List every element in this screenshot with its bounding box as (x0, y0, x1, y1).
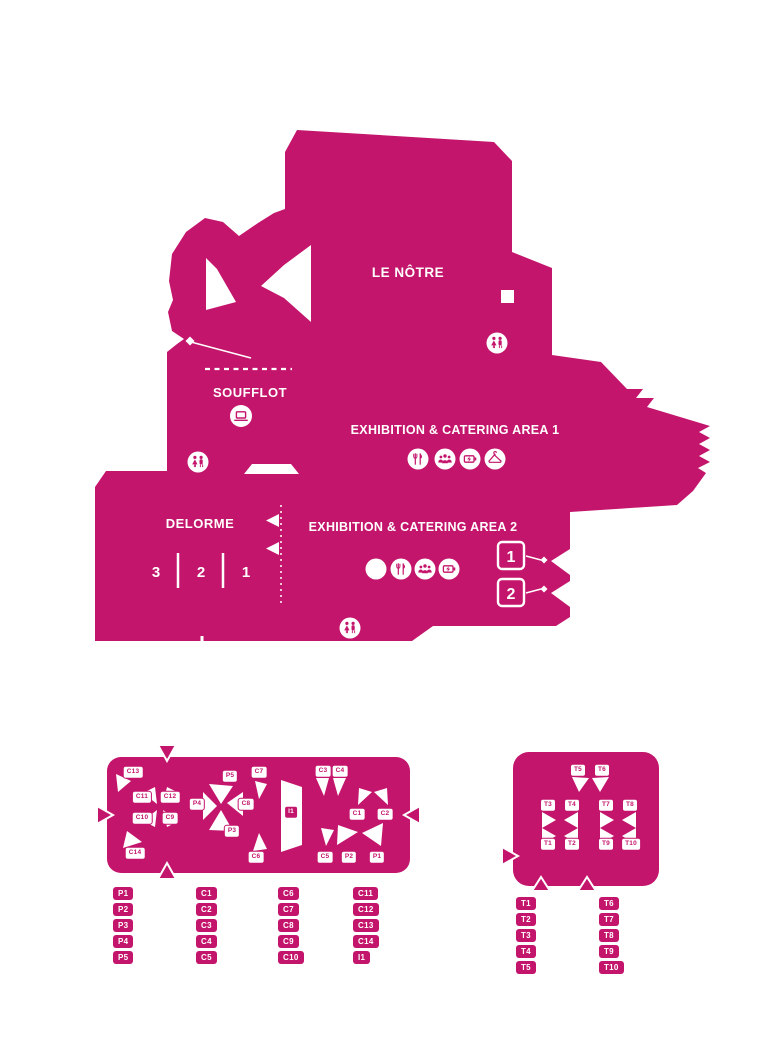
legend-badge-t7: T7 (599, 913, 619, 926)
wc-icon (188, 452, 209, 473)
spot-badge-c12: C12 (160, 791, 181, 804)
legend-badge-p4: P4 (113, 935, 133, 948)
spot-badge-p3: P3 (224, 825, 240, 838)
spot-badge-t3: T3 (540, 799, 556, 812)
legend-badge-i1: I1 (353, 951, 370, 964)
spot-badge-i1: I1 (284, 806, 298, 819)
wc-icon (340, 618, 361, 639)
legend-badge-c11: C11 (353, 887, 378, 900)
delorme-section-1: 1 (242, 564, 250, 581)
spot-badge-t1: T1 (540, 838, 556, 851)
legend-badge-t8: T8 (599, 929, 619, 942)
delorme-section-2: 2 (197, 564, 205, 581)
legend-badge-p2: P2 (113, 903, 133, 916)
restaurant-icon (391, 559, 412, 580)
legend-badge-c10: C10 (278, 951, 304, 964)
screen-icon (230, 405, 252, 427)
door-2-label: 2 (507, 586, 516, 603)
hall-delorme-label: DELORME (166, 516, 235, 531)
legend-badge-t2: T2 (516, 913, 536, 926)
spot-badge-c5: C5 (317, 851, 334, 864)
legend-badge-c14: C14 (353, 935, 379, 948)
spot-badge-t10: T10 (621, 838, 641, 851)
venue-floor-plan: # LE NÔTRE SOUFFLOT EXHIBITION & CATERIN… (0, 0, 783, 1049)
legend-badge-c6: C6 (278, 887, 299, 900)
legend-badge-p1: P1 (113, 887, 133, 900)
hashtag-icon (366, 559, 387, 580)
legend-badge-c9: C9 (278, 935, 299, 948)
delorme-section-3: 3 (152, 564, 160, 581)
legend-badge-p3: P3 (113, 919, 133, 932)
legend-badge-t1: T1 (516, 897, 536, 910)
legend-badge-t9: T9 (599, 945, 619, 958)
spot-badge-t5: T5 (570, 764, 586, 777)
spot-badge-p2: P2 (341, 851, 357, 864)
charging-icon (439, 559, 460, 580)
spot-badge-c4: C4 (332, 765, 349, 778)
legend-badge-c1: C1 (196, 887, 217, 900)
legend-badge-c5: C5 (196, 951, 217, 964)
spot-badge-c6: C6 (248, 851, 265, 864)
legend-badge-c7: C7 (278, 903, 299, 916)
legend-badge-c3: C3 (196, 919, 217, 932)
legend-badge-t4: T4 (516, 945, 536, 958)
legend-badge-t6: T6 (599, 897, 619, 910)
spot-badge-c7: C7 (251, 766, 268, 779)
shaft-cutout (501, 290, 514, 303)
spot-badge-c9: C9 (162, 812, 179, 825)
legend-badge-t10: T10 (599, 961, 624, 974)
legend-badge-c2: C2 (196, 903, 217, 916)
legend-badge-c4: C4 (196, 935, 217, 948)
legend-badge-t3: T3 (516, 929, 536, 942)
spot-badge-p5: P5 (222, 770, 238, 783)
spot-badge-c3: C3 (315, 765, 332, 778)
spot-badge-t2: T2 (564, 838, 580, 851)
charging-icon (460, 449, 481, 470)
hall-detail-right (513, 752, 659, 886)
spot-badge-c13: C13 (123, 766, 144, 779)
wc-icon (487, 333, 508, 354)
spot-badge-t8: T8 (622, 799, 638, 812)
legend-badge-c13: C13 (353, 919, 379, 932)
door-1-label: 1 (507, 549, 516, 566)
spot-badge-c1: C1 (349, 808, 366, 821)
legend-badge-c8: C8 (278, 919, 299, 932)
area2-label: EXHIBITION & CATERING AREA 2 (309, 520, 518, 534)
spot-badge-t4: T4 (564, 799, 580, 812)
spot-badge-c14: C14 (125, 847, 146, 860)
spot-badge-t7: T7 (598, 799, 614, 812)
stage-shape (244, 464, 299, 474)
legend-badge-t5: T5 (516, 961, 536, 974)
spot-badge-t9: T9 (598, 838, 614, 851)
hall-soufflot-label: SOUFFLOT (213, 385, 287, 400)
spot-badge-c8: C8 (238, 798, 255, 811)
spot-badge-c10: C10 (132, 812, 153, 825)
cloakroom-icon (485, 449, 506, 470)
spot-badge-p4: P4 (189, 798, 205, 811)
spot-badge-t6: T6 (594, 764, 610, 777)
meeting-group-icon (415, 559, 436, 580)
meeting-group-icon (435, 449, 456, 470)
spot-badge-c11: C11 (132, 791, 152, 804)
spot-badge-p1: P1 (369, 851, 385, 864)
legend-badge-c12: C12 (353, 903, 379, 916)
area1-label: EXHIBITION & CATERING AREA 1 (351, 423, 560, 437)
restaurant-icon (408, 449, 429, 470)
hall-le-notre-label: LE NÔTRE (372, 265, 444, 280)
legend-badge-p5: P5 (113, 951, 133, 964)
spot-badge-c2: C2 (377, 808, 394, 821)
